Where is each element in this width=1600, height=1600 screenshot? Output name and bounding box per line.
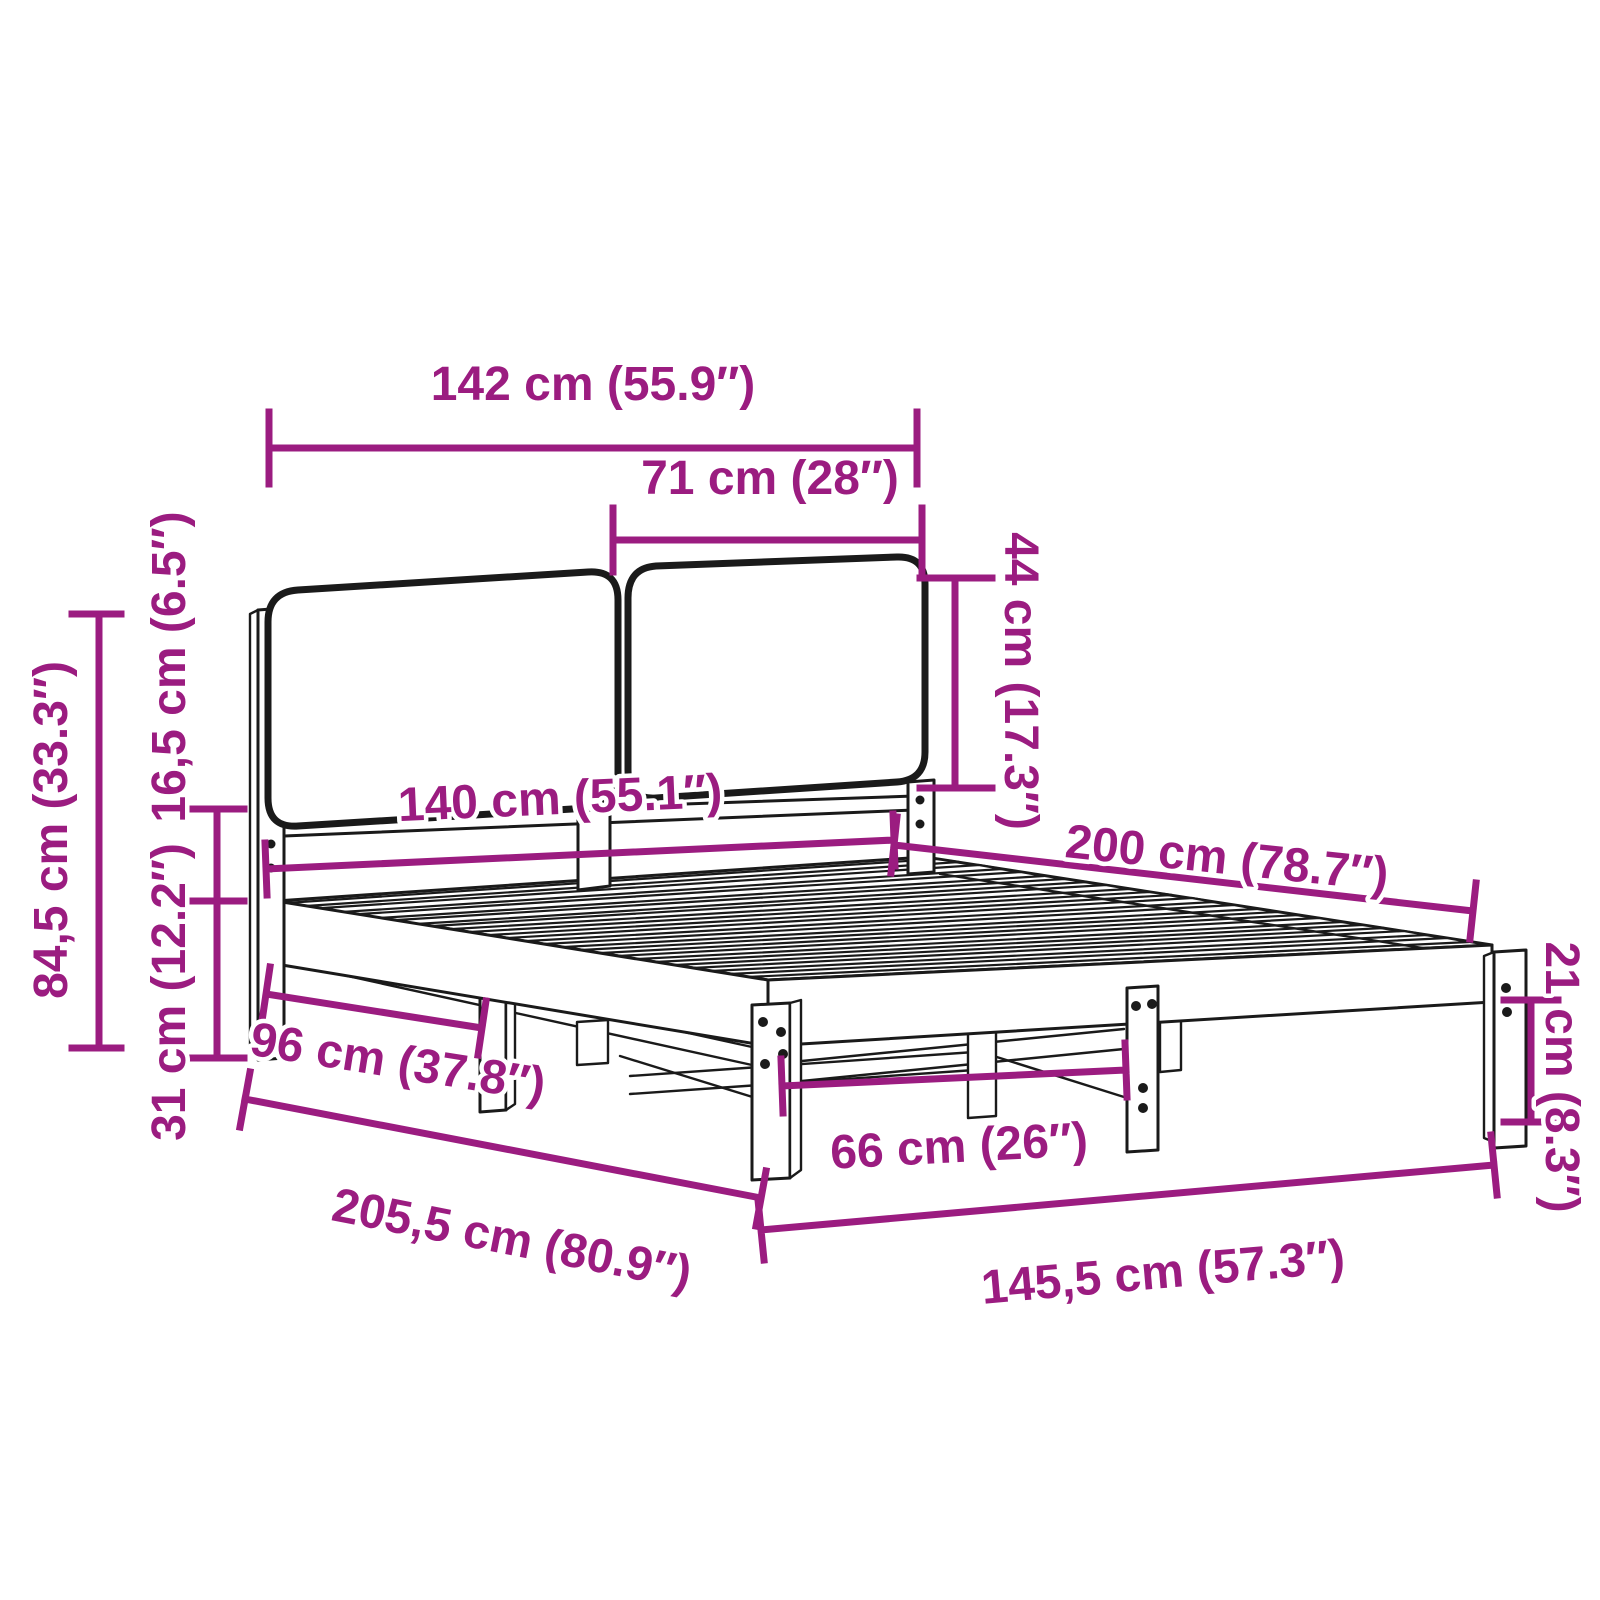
dimension-cushion-width: 71 cm (28″) [613,452,922,572]
dimension-cushion-height: 44 cm (17.3″) [920,532,1047,830]
dim-label-71cm: 71 cm (28″) [641,452,899,505]
dim-line-44cm [920,578,992,788]
center-support-foot [1160,1015,1181,1072]
foot-near-leg [752,1000,801,1180]
dim-line-16-5cm-31cm [190,809,244,1058]
dimension-headboard-total-height: 84,5 cm (33.3″) [25,614,121,1048]
headboard-right-post [908,780,934,874]
dim-line-84-5cm [72,614,121,1048]
headboard-cushion-right [628,557,925,798]
dim-label-44cm: 44 cm (17.3″) [994,532,1047,830]
dimension-diagram: 142 cm (55.9″) 71 cm (28″) 44 cm (17.3″)… [0,0,1600,1600]
foot-middle-leg [1127,986,1158,1152]
dimension-cushion-panel-depth-and-frame-height: 16,5 cm (6.5″) 31 cm (12.2″) [143,511,244,1140]
dim-label-142cm: 142 cm (55.9″) [431,358,756,411]
dim-label-21cm: 21 cm (8.3″) [1535,941,1588,1212]
dim-label-145-5cm: 145,5 cm (57.3″) [979,1230,1347,1315]
center-support-foot [577,1020,608,1065]
dim-label-16-5cm: 16,5 cm (6.5″) [143,511,196,822]
dimension-foot-leg-spacing: 66 cm (26″) [781,1043,1127,1180]
dim-label-205-5cm: 205,5 cm (80.9″) [328,1179,696,1301]
dim-label-84-5cm: 84,5 cm (33.3″) [25,661,78,999]
dim-label-31cm: 31 cm (12.2″) [143,843,196,1141]
dim-label-66cm: 66 cm (26″) [829,1113,1089,1179]
foot-far-leg [1484,950,1526,1148]
diagram-canvas: 142 cm (55.9″) 71 cm (28″) 44 cm (17.3″)… [0,0,1600,1600]
